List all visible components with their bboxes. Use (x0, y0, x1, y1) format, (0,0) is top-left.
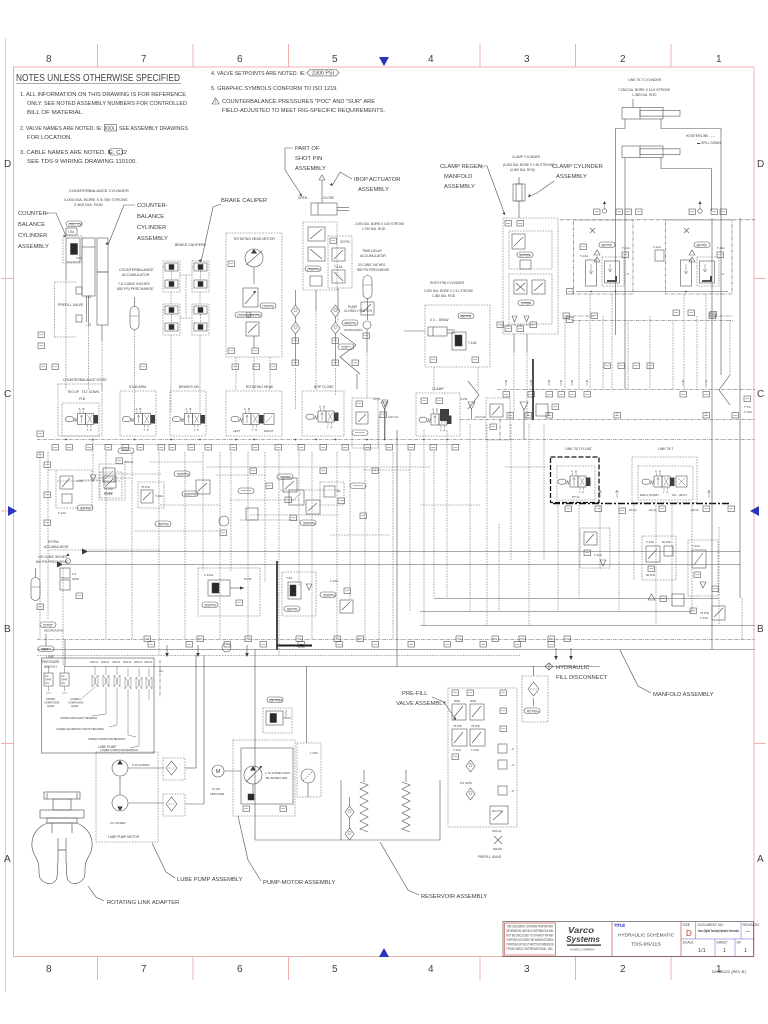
svg-text:8: 8 (46, 54, 52, 65)
svg-text:ROTATING LINK ADAPTER: ROTATING LINK ADAPTER (107, 900, 179, 906)
svg-text:D: D (686, 929, 692, 938)
svg-text:ROTATING HEAD MOTOR: ROTATING HEAD MOTOR (234, 237, 275, 241)
svg-text:B: B (757, 624, 764, 635)
svg-text:POC 750: POC 750 (69, 223, 83, 227)
svg-text:4 PSI: 4 PSI (373, 397, 381, 401)
svg-text:DECREASING: DECREASING (44, 629, 65, 633)
svg-text:LUBE PUMP ASSEMBLY: LUBE PUMP ASSEMBLY (177, 877, 243, 883)
svg-text:120 CUBIC INCHES: 120 CUBIC INCHES (38, 555, 67, 559)
svg-text:PART OF: PART OF (295, 146, 320, 152)
svg-text:15 PSI: 15 PSI (43, 624, 52, 628)
svg-text:!: ! (215, 99, 216, 104)
svg-text:B: B (4, 624, 11, 635)
svg-text:850 PSI PRECHARGE: 850 PSI PRECHARGE (357, 268, 389, 272)
svg-text:T-12A: T-12A (744, 410, 752, 414)
svg-text:3: 3 (524, 54, 530, 65)
svg-text:EXTRA: EXTRA (48, 540, 60, 544)
svg-text:200mA: 200mA (492, 829, 502, 833)
svg-text:DCM0222 (REV B): DCM0222 (REV B) (712, 969, 746, 974)
svg-text:1700 PSI: 1700 PSI (262, 305, 275, 309)
svg-text:GEAR: GEAR (47, 704, 54, 708)
svg-text:50 PSI: 50 PSI (662, 540, 671, 544)
svg-text:.50 IN³/REV MIN.: .50 IN³/REV MIN. (265, 776, 288, 780)
svg-text:INCREASING: INCREASING (344, 328, 363, 332)
svg-text:LINK TILT CYLINDER: LINK TILT CYLINDER (628, 78, 662, 82)
svg-text:1: 1 (716, 54, 722, 65)
svg-text:T-12A: T-12A (692, 544, 700, 548)
svg-text:C35: C35 (342, 346, 348, 350)
svg-text:GEAR: GEAR (71, 704, 78, 708)
svg-text:450 PSI: 450 PSI (460, 315, 471, 319)
svg-text:T-13A: T-13A (646, 540, 654, 544)
svg-text:2.000 DIA. BORE X 4.00 STROKE: 2.000 DIA. BORE X 4.00 STROKE (355, 222, 404, 226)
svg-text:INFORMATION, AND SUCH INFORMAT: INFORMATION, AND SUCH INFORMATION MAY (507, 929, 555, 933)
svg-text:1 MIC: 1 MIC (310, 751, 319, 755)
svg-text:5.10 IN³/REV: 5.10 IN³/REV (132, 763, 150, 767)
svg-text:Systems: Systems (566, 935, 601, 944)
svg-text:OPEN→: OPEN→ (298, 196, 310, 200)
svg-text:ASSEMBLY: ASSEMBLY (556, 174, 587, 180)
svg-text:T-12A: T-12A (453, 748, 461, 752)
svg-text:PUMP-MOTOR ASSEMBLY: PUMP-MOTOR ASSEMBLY (263, 880, 335, 886)
svg-text:OIL: OIL (45, 681, 50, 685)
svg-text:2. VALVE NAMES ARE NOTED. IE:: 2. VALVE NAMES ARE NOTED. IE: XXX . SEE … (20, 126, 188, 132)
svg-text:4. VALVE SETPOINTS ARE NOTED.: 4. VALVE SETPOINTS ARE NOTED. IE: (211, 71, 306, 77)
svg-text:OF: OF (737, 941, 742, 945)
svg-text:800 PSI PRECHARGE: 800 PSI PRECHARGE (36, 560, 68, 564)
svg-text:D: D (757, 159, 764, 170)
svg-text:COUNTER-: COUNTER- (18, 211, 49, 217)
svg-text:PURPOSES WITHOUT WRITTEN PERMI: PURPOSES WITHOUT WRITTEN PERMISSION (507, 943, 554, 947)
svg-text:NOTES UNLESS OTHERWISE SPECIFI: NOTES UNLESS OTHERWISE SPECIFIED (16, 72, 180, 84)
svg-text:A: A (757, 854, 764, 865)
svg-text:Varco Digital Tracking Hydraul: Varco Digital Tracking Hydraulic Schemat… (698, 929, 739, 933)
svg-text:T-11A: T-11A (594, 553, 602, 557)
svg-text:SEE TDS-9 WIRING DRAWING 110: SEE TDS-9 WIRING DRAWING 110100. (27, 159, 137, 165)
svg-text:IBOP ACTUATOR: IBOP ACTUATOR (354, 177, 400, 183)
svg-text:T-11A: T-11A (622, 246, 630, 250)
svg-text:NO PSI: NO PSI (492, 809, 502, 813)
svg-text:PURPOSE NOR USED FOR MANUFACTU: PURPOSE NOR USED FOR MANUFACTURING (507, 938, 554, 942)
svg-text:T PS: T PS (744, 405, 751, 409)
svg-text:850 PSI PRECHARGE: 850 PSI PRECHARGE (117, 287, 154, 291)
svg-text:DM2: DM2 (470, 699, 477, 703)
svg-text:ASSEMBLY: ASSEMBLY (358, 187, 389, 193)
svg-text:TIME-DELAY: TIME-DELAY (362, 249, 383, 253)
svg-text:—: — (745, 929, 750, 935)
svg-text:LEFT: LEFT (233, 429, 241, 433)
svg-text:T-11A: T-11A (653, 245, 661, 249)
svg-text:VALVE ASSEMBLY: VALVE ASSEMBLY (396, 701, 446, 707)
svg-text:ASSEMBLY: ASSEMBLY (137, 236, 168, 242)
svg-text:BOP CLOSE: BOP CLOSE (314, 385, 334, 389)
svg-text:0.5 GPM: 0.5 GPM (460, 781, 472, 785)
svg-text:LINK TILT FLOAT: LINK TILT FLOAT (565, 447, 592, 451)
svg-text:4: 4 (428, 964, 434, 975)
svg-text:HOISTER/LINE →←: HOISTER/LINE →← (686, 134, 715, 138)
svg-text:T-10A: T-10A (580, 254, 588, 258)
svg-text:BALANCE: BALANCE (18, 222, 45, 228)
svg-text:1: 1 (723, 948, 726, 954)
svg-text:2: 2 (620, 964, 626, 975)
svg-text:CLAMP CYLINDER: CLAMP CYLINDER (512, 155, 541, 159)
svg-text:1.380 DIA. ROD: 1.380 DIA. ROD (632, 93, 657, 97)
svg-text:5 PSIA: 5 PSIA (521, 302, 532, 306)
svg-text:T-12A: T-12A (700, 616, 708, 620)
svg-text:24 PSI: 24 PSI (104, 491, 113, 495)
svg-text:1: 1 (744, 948, 747, 954)
svg-text:FIELD-ADJUSTED TO MEET RIG-SPE: FIELD-ADJUSTED TO MEET RIG-SPECIFIC REQU… (222, 108, 385, 114)
svg-text:SHOT PIN: SHOT PIN (295, 156, 322, 162)
svg-text:360 PSI: 360 PSI (280, 476, 291, 480)
svg-text:GPM: GPM (72, 577, 79, 581)
svg-text:T-12A: T-12A (58, 511, 66, 515)
svg-text:.07mA: .07mA (628, 508, 637, 512)
svg-text:1800 RPM: 1800 RPM (210, 792, 225, 796)
svg-text:LOWER: LOWER (70, 697, 80, 701)
svg-text:THIS DOCUMENT CONTAINS PROPRIE: THIS DOCUMENT CONTAINS PROPRIETARY (507, 925, 555, 929)
svg-text:1/2: 1/2 (61, 674, 65, 678)
svg-text:C: C (757, 389, 764, 400)
svg-text:ASSEMBLY: ASSEMBLY (295, 166, 326, 172)
svg-text:650 PSIA: 650 PSIA (269, 699, 283, 703)
svg-text:COUNTERBALANCE HOIST: COUNTERBALANCE HOIST (63, 378, 107, 382)
svg-text:→3: →3 (509, 763, 514, 767)
svg-text:.22mA: .22mA (690, 508, 699, 512)
svg-text:COMPOUND: COMPOUND (44, 701, 60, 705)
svg-text:SWITCH: SWITCH (44, 665, 57, 669)
svg-text:GPM: GPM (61, 678, 67, 682)
svg-text:FROM VARCO INTERNATIONAL, INC.: FROM VARCO INTERNATIONAL, INC. (507, 947, 554, 951)
svg-text:SCALE: SCALE (683, 941, 695, 945)
svg-text:5: 5 (332, 54, 338, 65)
svg-text:FILL DISCONNECT: FILL DISCONNECT (556, 675, 608, 681)
svg-text:2050 PSI: 2050 PSI (323, 594, 336, 598)
svg-text:20 CUBIC INCHES: 20 CUBIC INCHES (358, 263, 385, 267)
svg-text:(4.000 DIA. ROD): (4.000 DIA. ROD) (510, 168, 535, 172)
svg-text:NC PSIA: NC PSIA (527, 710, 539, 714)
svg-text:1750 PSI: 1750 PSI (307, 268, 320, 272)
svg-text:1.5: 1.5 (72, 572, 77, 576)
svg-text:200mA: 200mA (90, 660, 98, 664)
svg-text:CYLINDER: CYLINDER (18, 233, 47, 239)
svg-text:MANFOLD ASSEMBLY: MANFOLD ASSEMBLY (653, 692, 714, 698)
svg-text:CLAMP REGEN,: CLAMP REGEN, (440, 164, 484, 170)
svg-text:2050 PSI: 2050 PSI (303, 522, 316, 526)
svg-text:7.250 DIA. BORE X 14.5 STROKE: 7.250 DIA. BORE X 14.5 STROKE (618, 88, 671, 92)
svg-text:OIL: OIL (61, 681, 66, 685)
svg-text:T-12/H: T-12/H (204, 573, 213, 577)
svg-text:HYDRAULIC SCHEMATIC: HYDRAULIC SCHEMATIC (618, 933, 675, 939)
svg-text:75 PSI: 75 PSI (700, 611, 709, 615)
svg-text:BRAKE CALIPER: BRAKE CALIPER (221, 198, 267, 204)
svg-text:BRAKES ON: BRAKES ON (179, 385, 199, 389)
svg-text:PREFILL VALVE: PREFILL VALVE (478, 855, 502, 859)
svg-text:LINK TILT: LINK TILT (658, 447, 673, 451)
svg-text:0.07mA: 0.07mA (475, 415, 485, 419)
svg-text:CLOSELY SWITCH: CLOSELY SWITCH (344, 309, 373, 313)
svg-text:→2: →2 (509, 747, 514, 751)
svg-text:FOR LOCATION.: FOR LOCATION. (27, 135, 72, 141)
svg-text:ONLY. SEE NOTED ASSEMBLY NUMBE: ONLY. SEE NOTED ASSEMBLY NUMBERS FOR CON… (27, 101, 187, 107)
svg-text:1.380 DIA. ROD: 1.380 DIA. ROD (432, 294, 456, 298)
svg-text:SHEET: SHEET (717, 941, 728, 945)
svg-text:6: 6 (237, 964, 243, 975)
svg-text:1/1: 1/1 (698, 948, 706, 954)
svg-text:CYLINDER: CYLINDER (137, 225, 166, 231)
svg-text:4: 4 (428, 54, 434, 65)
svg-text:RESERVOIR ASSEMBLY: RESERVOIR ASSEMBLY (421, 894, 487, 900)
svg-text:NOT BE DISCLOSED TO OTHERS FOR: NOT BE DISCLOSED TO OTHERS FOR ANY (507, 934, 555, 938)
svg-text:75 PSI: 75 PSI (453, 724, 462, 728)
svg-text:75 PSI: 75 PSI (141, 485, 150, 489)
svg-text:DOCUMENT NO.: DOCUMENT NO. (698, 923, 725, 927)
svg-text:UPPER: UPPER (46, 697, 55, 701)
svg-text:T-9A: T-9A (68, 230, 76, 234)
svg-text:1.750 DIA. ROD: 1.750 DIA. ROD (362, 227, 386, 231)
svg-text:50 PSIA: 50 PSIA (519, 254, 532, 258)
svg-text:CLAMP CYLINDER: CLAMP CYLINDER (552, 164, 603, 170)
svg-text:75 PSI: 75 PSI (471, 724, 480, 728)
svg-text:5: 5 (332, 964, 338, 975)
svg-text:1.72 IN³/REV MAX.: 1.72 IN³/REV MAX. (265, 771, 291, 775)
svg-text:W1→BOLT: W1→BOLT (672, 493, 687, 497)
svg-text:LUBE: LUBE (46, 655, 54, 659)
svg-text:BALANCE: BALANCE (137, 214, 164, 220)
svg-text:A VARCO COMPANY: A VARCO COMPANY (570, 948, 595, 952)
svg-text:8: 8 (46, 964, 52, 975)
svg-text:BILL OF MATERIAL.: BILL OF MATERIAL. (27, 110, 84, 116)
svg-text:50 PSI: 50 PSI (646, 573, 655, 577)
svg-text:C: C (4, 389, 11, 400)
svg-text:2000 PSI: 2000 PSI (177, 473, 190, 477)
svg-text:600 PSI: 600 PSI (287, 608, 298, 612)
svg-text:6: 6 (237, 54, 243, 65)
svg-text:1700 PSI: 1700 PSI (248, 314, 261, 318)
svg-text:SIZE: SIZE (683, 923, 691, 927)
svg-text:1/2: 1/2 (45, 674, 49, 678)
svg-text:PREFILL VALVE: PREFILL VALVE (58, 303, 84, 307)
svg-text:ACCUMULATOR: ACCUMULATOR (360, 254, 386, 258)
svg-text:→X: →X (719, 272, 724, 276)
svg-text:COUNTERBALANCE: COUNTERBALANCE (119, 268, 154, 272)
svg-text:200mA: 200mA (101, 660, 109, 664)
svg-text:200mA: 200mA (134, 660, 142, 664)
svg-text:0.07mA: 0.07mA (388, 415, 398, 419)
svg-text:1700 PSI: 1700 PSI (237, 314, 250, 318)
svg-text:UPPER MAINSHAFT BEARING: UPPER MAINSHAFT BEARING (60, 716, 97, 720)
svg-text:T-4A: T-4A (286, 576, 292, 580)
svg-text:4 PSI: 4 PSI (460, 397, 468, 401)
svg-text:LUBE PUMP MOTOR: LUBE PUMP MOTOR (108, 835, 140, 839)
svg-text:5μ: 5μ (337, 489, 341, 493)
svg-text:5. GRAPHIC SYMBOLS CONFORM TO: 5. GRAPHIC SYMBOLS CONFORM TO ISO 1219. (211, 86, 338, 92)
svg-text:2: 2 (620, 54, 626, 65)
svg-text:7: 7 (141, 54, 147, 65)
svg-text:T-12A: T-12A (155, 494, 163, 498)
svg-text:MANFOLD: MANFOLD (444, 174, 472, 180)
svg-text:7.5 CUBIC INCHES: 7.5 CUBIC INCHES (118, 282, 150, 286)
svg-text:SHOT-PIN CYLINDER: SHOT-PIN CYLINDER (430, 281, 465, 285)
svg-text:3.6 IN³/REV: 3.6 IN³/REV (110, 821, 126, 825)
svg-text:PRE-FILL: PRE-FILL (402, 691, 428, 697)
svg-text:TITLE: TITLE (614, 923, 625, 928)
svg-text:DRAIN: DRAIN (493, 847, 502, 851)
svg-text:ASSEMBLY: ASSEMBLY (444, 184, 475, 190)
svg-text:2.000 DIA. BORE X 2.31 STROKE: 2.000 DIA. BORE X 2.31 STROKE (424, 289, 473, 293)
svg-text:(5.000 DIA. BORE X 1.50 STROKE: (5.000 DIA. BORE X 1.50 STROKE) (503, 163, 554, 167)
svg-text:PT-11: PT-11 (572, 495, 580, 499)
svg-text:Varco: Varco (568, 926, 594, 935)
svg-text:30 PSI: 30 PSI (340, 240, 350, 244)
svg-text:200mA: 200mA (123, 660, 131, 664)
svg-text:STAB ARM: STAB ARM (129, 385, 146, 389)
svg-text:HYDRAULIC: HYDRAULIC (556, 665, 590, 671)
svg-text:D: D (4, 159, 11, 170)
svg-text:T-12A: T-12A (334, 265, 343, 269)
svg-text:REVISION: REVISION (743, 923, 760, 927)
svg-text:2300 PSI: 2300 PSI (312, 71, 334, 77)
svg-text:COUNTERBALANCE PRESSURES "POC": COUNTERBALANCE PRESSURES "POC" AND "SUR"… (222, 99, 375, 105)
svg-text:1. ALL INFORMATION ON THIS DRA: 1. ALL INFORMATION ON THIS DRAWING IS FO… (20, 92, 186, 98)
svg-text:200mA: 200mA (112, 660, 120, 664)
svg-text:.22mA: .22mA (648, 508, 657, 512)
svg-text:450 PSI: 450 PSI (696, 244, 707, 248)
svg-text:TDS-9S/11S: TDS-9S/11S (631, 942, 661, 948)
svg-text:COUNTERBALANCE CYLINDER: COUNTERBALANCE CYLINDER (69, 188, 129, 193)
svg-text:450 PSI: 450 PSI (601, 244, 612, 248)
svg-text:800mA: 800mA (124, 460, 134, 464)
svg-text:7: 7 (141, 964, 147, 975)
svg-text:ASSEMBLY: ASSEMBLY (18, 244, 49, 250)
svg-text:RIG UP TILT DOWN: RIG UP TILT DOWN (68, 390, 100, 394)
svg-text:DM1: DM1 (454, 699, 461, 703)
svg-text:RIGHT: RIGHT (264, 429, 274, 433)
svg-text:ACCUMULATOR: ACCUMULATOR (122, 273, 150, 277)
svg-text:PRESSURE: PRESSURE (42, 660, 60, 664)
svg-text:LOWER GEAR/MAIN THRUST BEARING: LOWER GEAR/MAIN THRUST BEARING (56, 727, 104, 731)
svg-text:GPM: GPM (45, 678, 51, 682)
svg-text:4440 PSI: 4440 PSI (344, 322, 357, 326)
svg-text:3: 3 (524, 964, 530, 975)
svg-text:2.500 DIA. ROD: 2.500 DIA. ROD (74, 202, 103, 207)
svg-text:→12: →12 (84, 295, 91, 299)
svg-text:2050 PSI: 2050 PSI (204, 604, 217, 608)
svg-text:300 PSI: 300 PSI (158, 523, 169, 527)
svg-text:DRILL DOWN: DRILL DOWN (640, 493, 659, 497)
svg-text:12 HP: 12 HP (212, 787, 220, 791)
svg-text:PLB: PLB (79, 397, 85, 401)
svg-text:UPPER COMPOUND BEARING: UPPER COMPOUND BEARING (88, 737, 125, 741)
svg-text:COMPOUND: COMPOUND (68, 701, 84, 705)
svg-text:T-12A: T-12A (471, 748, 479, 752)
svg-text:→12: →12 (84, 323, 91, 327)
svg-text:→5: →5 (509, 789, 514, 793)
svg-text:200 PSI: 200 PSI (80, 507, 91, 511)
svg-text:X 0→ DRAW: X 0→ DRAW (430, 318, 448, 322)
svg-text:▬ SPILL DOWN: ▬ SPILL DOWN (697, 141, 721, 145)
svg-text:T-10A: T-10A (468, 341, 477, 345)
svg-text:COUNTER-: COUNTER- (137, 203, 168, 209)
svg-text:LUBE PUMP: LUBE PUMP (98, 745, 116, 749)
svg-text:200mA: 200mA (144, 660, 152, 664)
svg-text:2050 PSI: 2050 PSI (184, 493, 197, 497)
svg-text:A: A (4, 854, 11, 865)
svg-text:BRAKE CALIPERS: BRAKE CALIPERS (175, 243, 207, 247)
